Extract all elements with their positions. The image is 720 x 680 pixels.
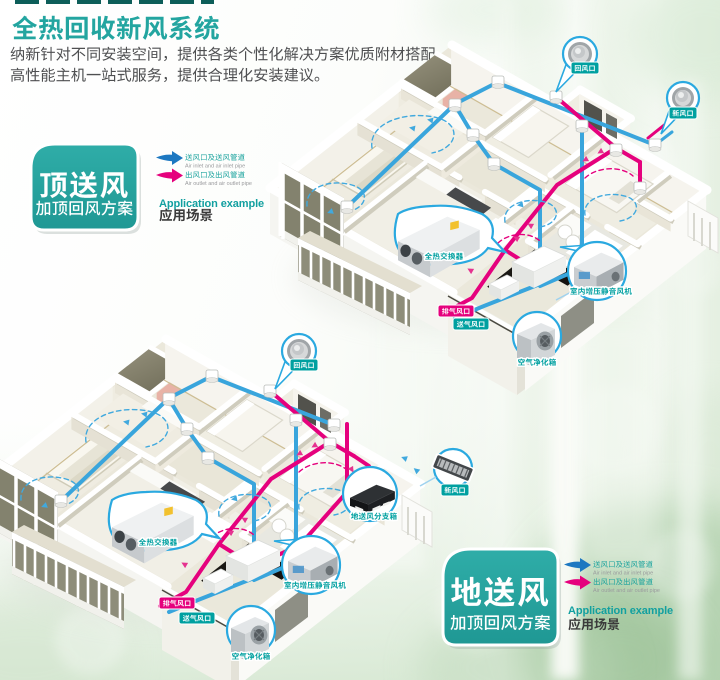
svg-text:Air inlet and air inlet pipe: Air inlet and air inlet pipe	[593, 571, 653, 577]
svg-text:Air inlet and air inlet pipe: Air inlet and air inlet pipe	[185, 164, 245, 170]
svg-text:Air outlet and air outlet pipe: Air outlet and air outlet pipe	[593, 588, 660, 594]
svg-text:Application example: Application example	[568, 605, 673, 617]
svg-text:Air outlet and air outlet pipe: Air outlet and air outlet pipe	[185, 181, 252, 187]
svg-text:Application example: Application example	[159, 198, 264, 210]
